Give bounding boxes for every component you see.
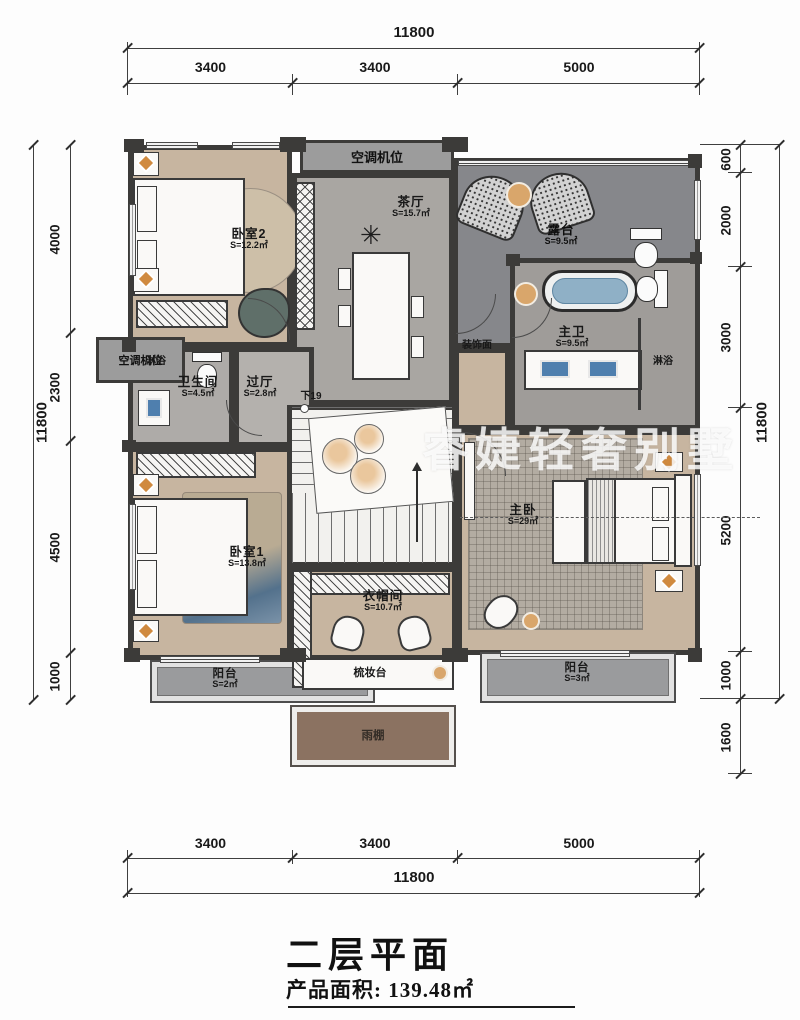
window [129,504,136,590]
sheet-title: 二层平面 [250,926,490,978]
wall-pillar [690,252,702,264]
terrace-railing [458,160,696,166]
dim-label-top-total: 11800 [128,24,700,41]
side-table [522,612,540,630]
bed-bench [552,480,586,564]
wall-pillar [442,648,468,662]
dim-ext-line [292,74,293,95]
toilet-tank [192,352,222,362]
wall-pillar [280,137,306,152]
room-label-bedroom1: 卧室1 S=13.8㎡ [210,546,284,569]
pillow [652,487,669,521]
dim-label-right-total: 11800 [754,383,771,463]
toilet-bowl [636,276,658,302]
bed-blanket [586,478,616,564]
dim-ext-line [457,74,458,95]
compass-icon [662,574,676,588]
ac-unit-box-top: 空调机位 [300,140,454,173]
sink [540,360,570,378]
dim-line-right-total [779,145,780,699]
dim-label-left-seg4: 1000 [48,655,63,699]
cabinet-hatch [295,182,315,330]
dim-line-bottom-total [128,893,700,894]
balcony-door-window [500,650,630,657]
room-label-hallway: 过厅 S=2.8㎡ [228,376,292,399]
dim-label-left-seg1: 4000 [48,218,63,262]
room-label-master-bath: 主卫 S=9.5㎡ [540,326,604,349]
shower-label-right: 淋浴 [640,356,686,367]
plant-icon: ✳ [360,222,382,248]
pillow [137,186,157,232]
wall-pillar [442,137,468,152]
tea-table [352,252,410,380]
chair [411,296,424,318]
canopy-label: 雨棚 [330,730,416,743]
floor-plan-sheet: 11800 3400 3400 5000 3400 3400 5000 1180… [0,0,800,1020]
compass-icon [139,478,153,492]
dim-label-top-seg1: 3400 [128,59,293,75]
watermark-text: 睿婕轻奢别墅 [422,414,740,480]
dim-label-right-seg1: 600 [719,138,734,182]
pillow [137,560,157,608]
pillow [652,527,669,561]
pillow [137,506,157,554]
dim-label-right-seg2: 2000 [719,199,734,243]
sheet-area-line: 产品面积: 139.48㎡ [250,974,510,1004]
dim-label-bottom-total: 11800 [128,869,700,886]
sink [146,398,162,418]
side-table [506,182,532,208]
dresser-stool [432,665,448,681]
dim-label-left-seg2: 2300 [48,366,63,410]
dim-label-right-seg4: 5200 [719,509,734,553]
stair-start-marker [300,404,309,413]
nightstand [655,570,683,592]
compass-icon [139,156,153,170]
toilet-tank [630,228,662,240]
shower-label-left: 淋浴 [136,356,176,367]
bathtub-water [552,278,628,304]
bed-headboard [674,474,692,567]
room-label-bathroom: 卫生间 S=4.5㎡ [166,376,230,399]
dim-label-bottom-seg3: 5000 [458,835,700,851]
nightstand [133,152,159,176]
dim-label-top-seg3: 5000 [458,59,700,75]
dim-label-top-seg2: 3400 [293,59,457,75]
dim-label-bottom-seg2: 3400 [293,835,457,851]
dim-label-right-seg5: 1000 [719,654,734,698]
chair [411,336,424,358]
dim-label-right-seg6: 1600 [719,716,734,760]
window [232,142,280,149]
wall-pillar [124,648,140,662]
stair-arrow-icon [412,462,422,471]
window [146,142,198,149]
room-label-master-bedroom: 主卧 S=29㎡ [492,504,554,527]
room-label-balcony-left: 阳台 S=2㎡ [188,668,262,690]
window [694,474,701,566]
nightstand [133,268,159,292]
room-label-balcony-right: 阳台 S=3㎡ [540,662,614,684]
toilet-bowl [634,242,658,268]
wall-pillar [124,139,144,152]
dim-label-bottom-seg1: 3400 [128,835,293,851]
window [129,204,136,276]
wall-pillar [280,648,306,662]
balcony-door-window [160,656,260,663]
ottoman [354,424,384,454]
wall-pillar [122,338,136,352]
title-underline [288,1006,575,1008]
room-label-cloakroom: 衣帽间 S=10.7㎡ [338,590,428,613]
chair [338,268,351,290]
room-label-tea-hall: 茶厅 S=15.7㎡ [376,196,446,219]
wall-pillar [688,154,702,168]
dresser-label: 梳妆台 [320,667,420,679]
nightstand [133,474,159,496]
stair-direction-line [416,470,418,542]
compass-icon [139,272,153,286]
decor-face-label: 装饰面 [452,340,502,351]
window [694,180,701,240]
room-label-terrace: 露台 S=9.5㎡ [526,224,596,247]
compass-icon [139,624,153,638]
dim-line-bottom-segments [128,858,700,859]
dim-line-left-segments [70,145,71,700]
wall-pillar [506,254,520,266]
wall-pillar [688,648,702,662]
sink [588,360,618,378]
dim-line-right-segments [740,145,741,775]
chair [338,305,351,327]
dim-label-left-seg3: 4500 [48,526,63,570]
bathtub [542,270,638,312]
closet-hatch [136,300,228,328]
wall-pillar [122,440,136,452]
dim-label-right-seg3: 3000 [719,316,734,360]
ottoman [350,458,386,494]
dim-line-top-total [128,48,700,49]
dim-line-top-segments [128,83,700,84]
room-label-bedroom2: 卧室2 S=12.2㎡ [214,228,284,251]
stairs-down-label: 下19 [294,391,328,402]
nightstand [133,620,159,642]
